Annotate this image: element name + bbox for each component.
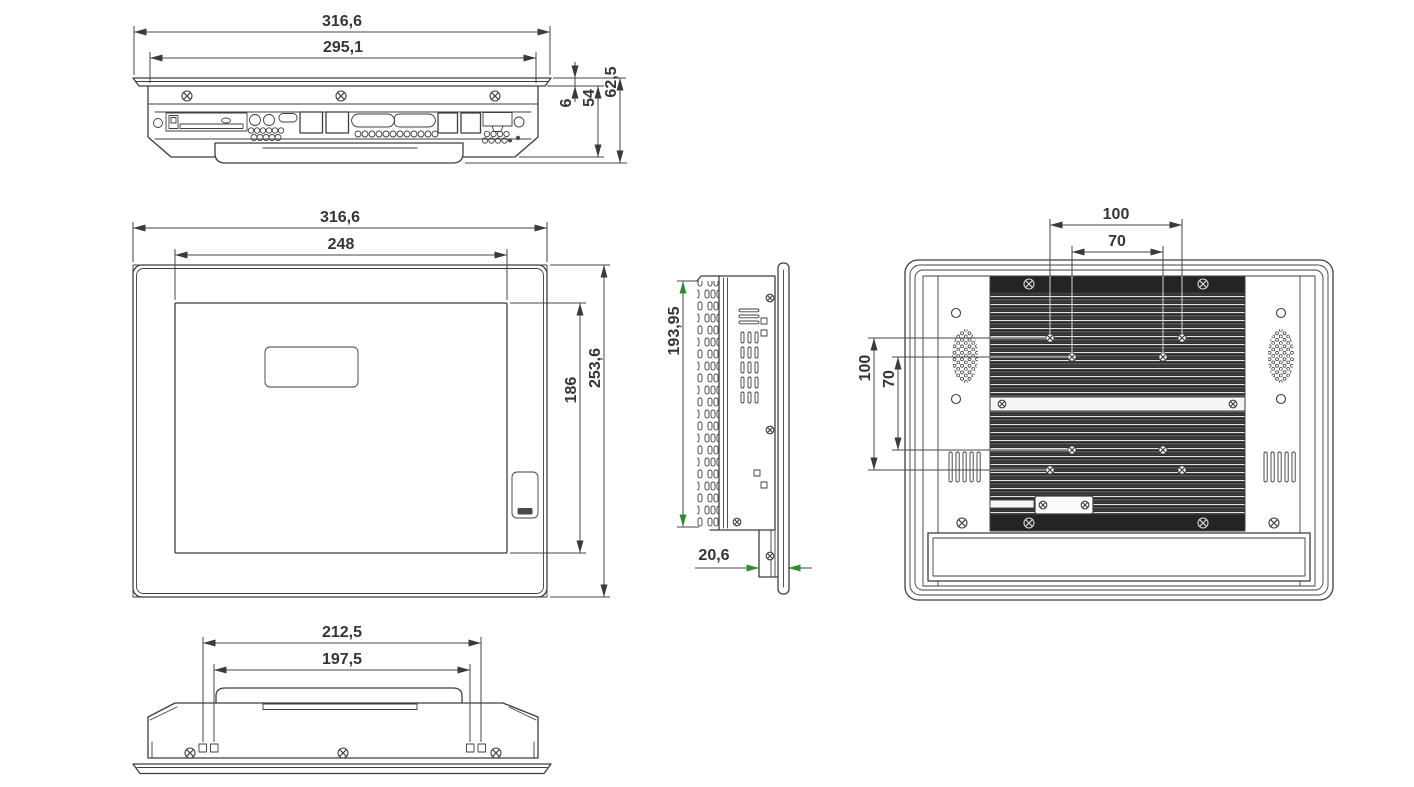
dim-top-overall-depth: 62,5	[603, 66, 620, 97]
speaker-grille-icon	[1268, 329, 1294, 383]
screw-icon	[491, 748, 501, 758]
screw-icon	[182, 91, 192, 101]
screw-icon	[998, 400, 1006, 408]
dim-front-overall-width: 316,6	[320, 209, 360, 226]
dim-bottom-bracket-outer: 212,5	[322, 624, 362, 641]
heatsink-fins	[697, 281, 719, 528]
bottom-cover-bar	[928, 533, 1310, 581]
rear-hood	[216, 688, 462, 703]
screw-icon	[338, 748, 348, 758]
screw-icon	[957, 518, 967, 528]
dim-front-display-width: 248	[328, 236, 355, 253]
mounting-hole-icon	[1277, 395, 1286, 404]
rear-hood	[215, 143, 463, 163]
mid-rail	[990, 397, 1245, 411]
screw-icon	[490, 91, 500, 101]
screw-icon	[1081, 501, 1089, 509]
mounting-hole-icon	[952, 309, 961, 318]
screw-icon	[766, 294, 774, 302]
mounting-hole-icon	[952, 395, 961, 404]
front-bezel-edge	[133, 764, 551, 774]
speaker-grille-icon	[952, 329, 978, 383]
dim-front-display-height: 186	[563, 377, 580, 404]
dim-rear-vesa-width-outer: 100	[1103, 206, 1130, 223]
screw-icon	[1229, 400, 1237, 408]
screw-icon	[733, 518, 741, 526]
dim-top-body-depth: 54	[581, 89, 598, 107]
dim-bottom-bracket-inner: 197,5	[322, 651, 362, 668]
front-bezel-edge	[133, 78, 551, 86]
screw-icon	[1198, 518, 1208, 528]
screw-icon	[1269, 518, 1279, 528]
dim-top-bezel-thickness: 6	[558, 98, 575, 107]
screw-icon	[185, 748, 195, 758]
mounting-hole-icon	[1277, 309, 1286, 318]
screw-icon	[1198, 279, 1208, 289]
screw-icon	[766, 426, 774, 434]
screw-icon	[1024, 518, 1034, 528]
dim-rear-vesa-height-outer: 100	[857, 355, 874, 382]
dim-top-overall-width: 316,6	[322, 13, 362, 30]
dim-front-overall-height: 253,6	[587, 348, 604, 388]
drawing-canvas: 316,6 295,1 6 54 62,5	[0, 0, 1414, 787]
dim-side-rear-hood-depth: 20,6	[698, 547, 729, 564]
screw-icon	[766, 552, 774, 560]
dim-rear-vesa-height-inner: 70	[881, 370, 898, 388]
screw-icon	[336, 91, 346, 101]
dim-top-chassis-width: 295,1	[323, 39, 363, 56]
dim-rear-vesa-width-inner: 70	[1108, 233, 1126, 250]
dim-side-cutout-height: 193,95	[666, 306, 683, 355]
panel-pc-technical-drawing: 316,6 295,1 6 54 62,5	[0, 0, 1414, 787]
screw-icon	[1024, 279, 1034, 289]
screw-icon	[1039, 501, 1047, 509]
